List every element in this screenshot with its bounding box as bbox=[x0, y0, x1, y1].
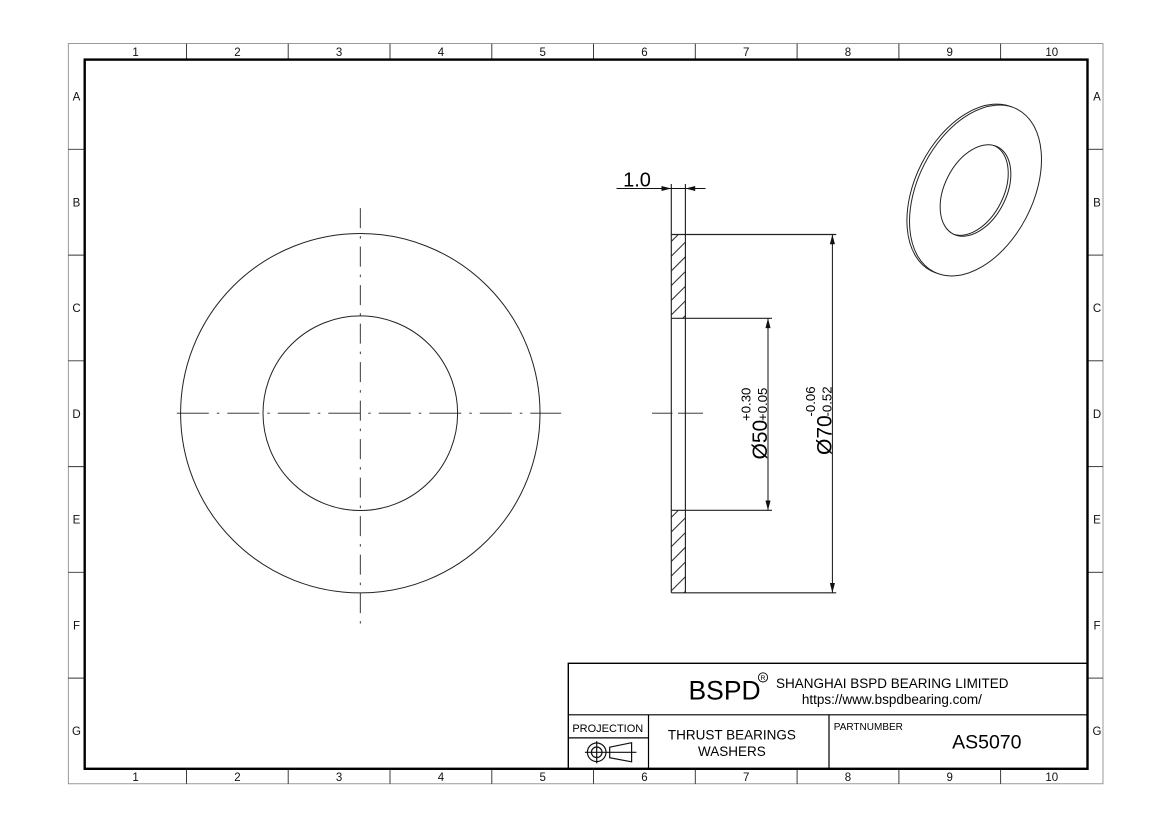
svg-text:6: 6 bbox=[641, 47, 647, 59]
svg-text:2: 2 bbox=[234, 772, 240, 784]
svg-text:PROJECTION: PROJECTION bbox=[572, 723, 643, 735]
svg-text:Ø50: Ø50 bbox=[749, 420, 772, 460]
svg-text:PARTNUMBER: PARTNUMBER bbox=[834, 722, 903, 733]
svg-text:B: B bbox=[1093, 197, 1101, 209]
svg-text:BSPD: BSPD bbox=[689, 676, 761, 706]
svg-text:AS5070: AS5070 bbox=[952, 732, 1022, 754]
svg-text:D: D bbox=[1093, 409, 1101, 421]
svg-text:4: 4 bbox=[438, 772, 445, 784]
svg-text:8: 8 bbox=[845, 772, 851, 784]
svg-text:D: D bbox=[72, 409, 80, 421]
svg-text:A: A bbox=[73, 92, 81, 104]
svg-text:https://www.bspdbearing.com/: https://www.bspdbearing.com/ bbox=[802, 692, 982, 707]
svg-text:C: C bbox=[72, 303, 80, 315]
svg-text:G: G bbox=[72, 726, 81, 738]
svg-text:8: 8 bbox=[845, 47, 851, 59]
svg-text:1: 1 bbox=[132, 772, 138, 784]
svg-text:-0.06: -0.06 bbox=[803, 386, 818, 416]
svg-text:1: 1 bbox=[132, 47, 138, 59]
svg-text:+0.30: +0.30 bbox=[738, 388, 753, 421]
svg-text:E: E bbox=[73, 515, 81, 527]
svg-text:F: F bbox=[1093, 620, 1100, 632]
svg-text:R: R bbox=[761, 675, 766, 682]
svg-text:+0.05: +0.05 bbox=[755, 388, 770, 421]
svg-text:2: 2 bbox=[234, 47, 240, 59]
svg-text:6: 6 bbox=[641, 772, 647, 784]
svg-text:A: A bbox=[1093, 92, 1101, 104]
svg-text:SHANGHAI BSPD BEARING LIMITED: SHANGHAI BSPD BEARING LIMITED bbox=[776, 676, 1009, 691]
svg-text:10: 10 bbox=[1045, 772, 1058, 784]
svg-text:B: B bbox=[73, 197, 81, 209]
svg-text:G: G bbox=[1093, 726, 1102, 738]
svg-text:-0.52: -0.52 bbox=[820, 386, 835, 416]
svg-text:7: 7 bbox=[743, 47, 749, 59]
svg-text:9: 9 bbox=[946, 47, 952, 59]
svg-text:C: C bbox=[1093, 303, 1101, 315]
svg-text:WASHERS: WASHERS bbox=[698, 744, 766, 759]
svg-text:E: E bbox=[1093, 515, 1101, 527]
svg-text:F: F bbox=[73, 620, 80, 632]
svg-text:10: 10 bbox=[1045, 47, 1058, 59]
svg-text:4: 4 bbox=[438, 47, 445, 59]
svg-text:3: 3 bbox=[336, 47, 342, 59]
svg-text:1.0: 1.0 bbox=[623, 170, 651, 192]
svg-text:9: 9 bbox=[946, 772, 952, 784]
svg-text:5: 5 bbox=[539, 47, 545, 59]
svg-text:5: 5 bbox=[539, 772, 545, 784]
svg-text:3: 3 bbox=[336, 772, 342, 784]
svg-text:7: 7 bbox=[743, 772, 749, 784]
svg-text:THRUST BEARINGS: THRUST BEARINGS bbox=[668, 728, 796, 743]
svg-text:Ø70: Ø70 bbox=[814, 415, 837, 455]
